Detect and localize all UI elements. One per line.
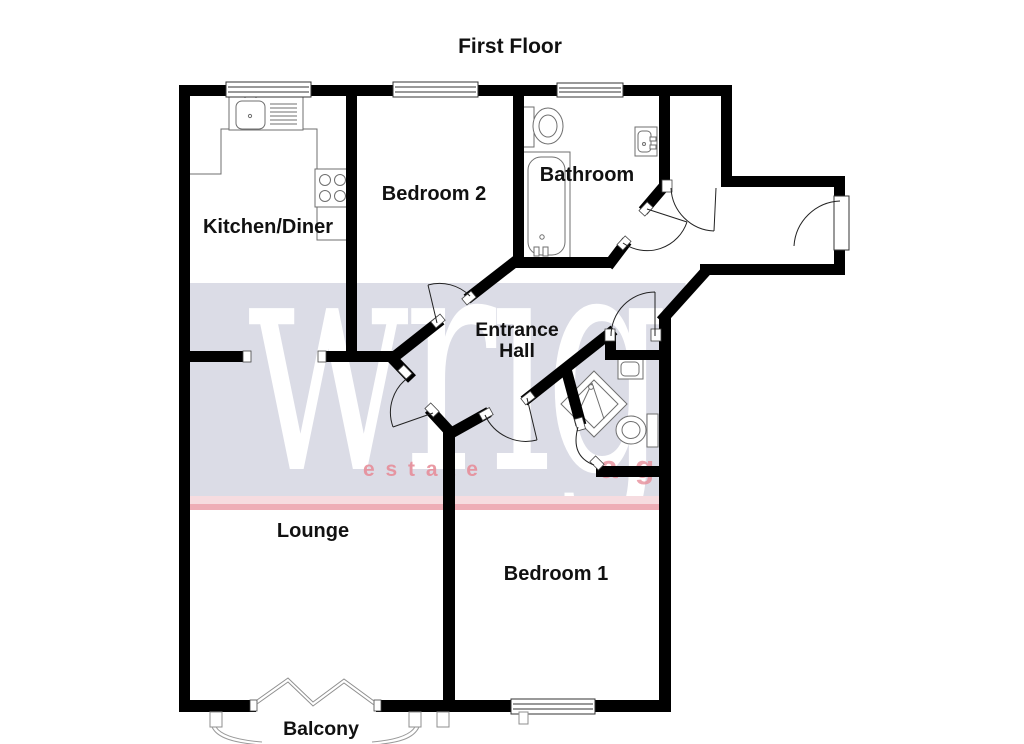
window-sill-post xyxy=(519,712,528,724)
basin-drain xyxy=(643,143,646,146)
ensuite-toilet-bowl-inner xyxy=(622,422,640,439)
floor-plan-page: wrigh e s t a t e a g xyxy=(0,0,1024,744)
page-title: First Floor xyxy=(458,35,562,58)
wall-bottom-left xyxy=(179,700,256,712)
bath-tap xyxy=(534,247,539,256)
wall-corridor-top xyxy=(721,176,845,187)
kitchen-hob xyxy=(315,169,349,207)
jamb xyxy=(243,351,251,362)
bath-drain xyxy=(540,235,544,239)
watermark-stripe-light xyxy=(179,496,671,504)
toilet-cistern xyxy=(523,107,534,147)
shower-head xyxy=(589,385,594,390)
room-label-bathroom: Bathroom xyxy=(540,164,634,186)
wall-kitchen-south-right xyxy=(318,351,396,362)
jamb xyxy=(662,180,672,192)
bath-tap xyxy=(543,247,548,256)
room-label-entrance-2: Hall xyxy=(499,340,535,362)
basin-tap xyxy=(650,145,656,149)
basin-bowl xyxy=(638,131,651,152)
wall-entry-right-upper xyxy=(834,176,845,197)
wall-kitchen-bedroom2 xyxy=(346,91,357,357)
jamb xyxy=(318,351,326,362)
wall-bathroom-west xyxy=(513,91,524,263)
window-frame xyxy=(226,82,311,97)
ensuite-basin-bowl xyxy=(621,362,639,376)
kitchen-sink-drain xyxy=(248,114,251,117)
floor-plan-canvas: wrigh e s t a t e a g xyxy=(0,0,1024,744)
hob-ring xyxy=(335,175,346,186)
wall-cupboard-west xyxy=(659,91,670,186)
room-label-entrance-1: Entrance xyxy=(475,319,559,341)
wall-top-right xyxy=(721,85,732,187)
jamb xyxy=(651,329,661,341)
jamb xyxy=(374,700,381,711)
window-frame xyxy=(557,83,623,97)
room-label-lounge: Lounge xyxy=(277,520,349,542)
wall-corridor-bottom xyxy=(700,264,845,275)
wall-lounge-bedroom1 xyxy=(443,428,455,712)
balcony-post xyxy=(437,712,449,727)
wall-east xyxy=(659,317,671,712)
wall-bathroom-south xyxy=(513,257,613,268)
hob-ring xyxy=(320,191,331,202)
window-frame xyxy=(393,82,478,97)
watermark-stripe-strong xyxy=(179,504,671,510)
window-kitchen xyxy=(226,82,311,97)
window-bedroom2 xyxy=(393,82,478,97)
balcony-post xyxy=(409,712,421,727)
wall-entry-right-lower xyxy=(834,249,845,275)
wall-kitchen-south-left xyxy=(179,351,245,362)
jamb xyxy=(605,329,615,341)
jamb xyxy=(250,700,257,711)
window-bathroom xyxy=(557,83,623,97)
front-door-leaf xyxy=(834,196,849,250)
watermark-tagline: e s t a t e xyxy=(363,458,480,481)
hob-ring xyxy=(320,175,331,186)
room-label-kitchen: Kitchen/Diner xyxy=(203,216,333,238)
ensuite-toilet-cistern xyxy=(647,414,658,447)
basin-tap xyxy=(650,137,656,141)
balcony-post xyxy=(210,712,222,727)
room-label-bedroom2: Bedroom 2 xyxy=(382,183,486,205)
hob-ring xyxy=(335,191,346,202)
room-label-bedroom1: Bedroom 1 xyxy=(504,563,608,585)
wall-left xyxy=(179,85,190,712)
room-label-balcony: Balcony xyxy=(283,718,359,740)
toilet-bowl-inner xyxy=(539,115,557,137)
